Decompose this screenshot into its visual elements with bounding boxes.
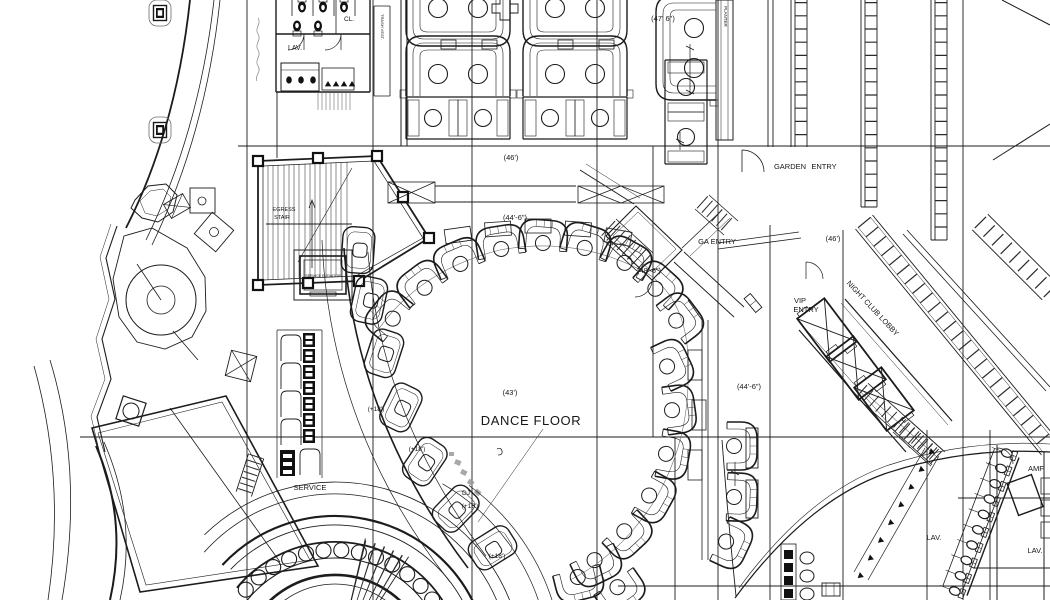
toilet-fixture <box>298 0 306 13</box>
cad-viewport[interactable]: LAV.CL.TRASH VEST.PLANTER(47' 6")GARDENE… <box>0 0 1050 600</box>
bottom-service-fixtures <box>781 544 840 600</box>
booth-seat <box>656 288 709 345</box>
dimension-tick <box>731 462 739 486</box>
niche <box>334 543 349 558</box>
label-lav-upper: LAV. <box>288 45 302 52</box>
rotunda-arc <box>443 484 547 600</box>
label-lav-lower-2: LAV. <box>1027 546 1042 555</box>
niche <box>400 567 415 582</box>
booth-seat <box>727 422 758 470</box>
label-garden-entry-word2: ENTRY <box>811 162 836 171</box>
label-tier-elev-b: (+18') <box>409 446 426 453</box>
dimension-tick <box>686 44 694 94</box>
niche <box>238 582 253 597</box>
niche <box>413 578 428 593</box>
lobby-curved-wall <box>735 451 1050 598</box>
toilet-fixture <box>977 508 995 522</box>
lower-lavatories <box>854 383 1050 600</box>
door-swing <box>325 34 341 50</box>
label-service: SERVICE <box>294 483 327 492</box>
upper-restrooms <box>256 0 390 158</box>
west-promenade <box>126 0 220 245</box>
door-swing <box>742 150 764 172</box>
rotunda-arc <box>257 575 408 600</box>
urinal-fixture <box>919 466 926 474</box>
escalator-band <box>791 0 807 147</box>
radial-stair <box>351 539 409 600</box>
column-grid <box>80 0 1050 600</box>
escalator-band <box>861 0 877 207</box>
dimension-tick <box>676 132 684 150</box>
escalator-band-diagonal <box>972 214 1050 300</box>
elevator-shaft <box>852 364 916 434</box>
booth-seat <box>392 255 449 308</box>
service-stair <box>236 454 264 497</box>
label-ga-entry: GA ENTRY <box>698 237 736 246</box>
label-service-elevator: SERVICE ELEVATOR <box>305 274 341 278</box>
toilet-stall-band <box>940 447 1018 599</box>
scalloped-ring <box>238 543 439 600</box>
label-dance-floor: DANCE FLOOR <box>481 413 582 428</box>
label-dim-46-upper: (46') <box>504 153 519 162</box>
centerline-symbol <box>497 448 502 455</box>
floor-plan-drawing: LAV.CL.TRASH VEST.PLANTER(47' 6")GARDENE… <box>0 0 1050 600</box>
niche <box>282 552 297 567</box>
vip-booth <box>399 434 451 490</box>
label-vip-entry-line2: ENTRY <box>793 305 818 314</box>
label-garden-entry-word1: GARDEN <box>774 162 806 171</box>
garden-entry-corridor <box>742 0 1050 240</box>
podium <box>744 294 762 313</box>
label-dim-48-6: (48'-6") <box>637 266 662 275</box>
label-egress-stair-line2: STAIR <box>274 215 290 221</box>
walkway-edge <box>993 0 1050 160</box>
shrub-line <box>256 18 259 81</box>
urinal-band <box>858 448 936 580</box>
hatch-stair <box>318 93 350 110</box>
label-dim-47-6: (47' 6") <box>651 14 675 23</box>
label-egress-stair-line1: EGRESS <box>273 207 296 213</box>
label-vip-entry-line1: VIP <box>794 296 806 305</box>
label-cl-closet: CL. <box>344 16 354 23</box>
escalator-band <box>931 0 947 240</box>
vip-booth <box>362 326 407 380</box>
booth-seat <box>400 0 516 46</box>
sofa-booths <box>406 97 510 139</box>
label-tier-elev-d: (+18') <box>489 553 506 560</box>
toilet-fixture <box>319 0 327 13</box>
label-dim-43: (43') <box>503 388 518 397</box>
label-dim-44-6-mid: (44'-6") <box>737 382 762 391</box>
toilet-fixture <box>340 0 348 13</box>
booth-seat <box>602 509 658 564</box>
label-tier-elev-c: (+18') <box>462 503 479 510</box>
night-club-lobby-area <box>722 214 1050 598</box>
x-planter <box>578 186 664 203</box>
column <box>149 0 171 26</box>
label-trash-vest: TRASH VEST. <box>380 14 385 40</box>
upper-lounge-area <box>400 0 773 164</box>
booth-seat <box>518 218 568 252</box>
label-lav-lower-1: LAV. <box>926 533 941 542</box>
niche <box>316 543 331 558</box>
bridge-corridor <box>435 186 576 202</box>
x-planter <box>388 182 435 203</box>
urinal-fixture <box>878 537 885 545</box>
rotunda <box>34 350 558 600</box>
booth-seat <box>517 0 633 46</box>
centerline <box>478 429 543 522</box>
toilet-fixture <box>983 493 1001 507</box>
label-dim-46-ga: (46') <box>826 234 841 243</box>
label-amf: AMF <box>1028 464 1044 473</box>
label-dj-booth: DJ <box>462 490 470 497</box>
door-swing <box>806 262 823 279</box>
urinal-fixture <box>858 572 865 580</box>
east-booth-cluster <box>709 422 758 573</box>
urinal-fixture <box>908 484 915 492</box>
niche <box>251 570 266 585</box>
urinal-fixture <box>888 519 895 527</box>
urinal-fixture <box>898 501 905 509</box>
urinal-fixture <box>868 554 875 562</box>
toilet-fixture <box>960 554 978 568</box>
toilet-fixture <box>971 524 989 538</box>
sofa-booths <box>665 60 707 164</box>
label-dim-44-6-upper: (44'-6") <box>503 213 528 222</box>
toilet-fixture <box>965 539 983 553</box>
sofa-booths <box>523 97 627 139</box>
booth-seat <box>661 383 698 435</box>
urinal-screen <box>322 68 354 90</box>
rotunda-arc <box>469 486 558 600</box>
booth-seat <box>650 335 698 391</box>
label-tier-elev-a: (+18') <box>368 406 385 413</box>
door-leaf <box>1007 475 1043 516</box>
service-bar <box>277 330 322 478</box>
label-planter: PLANTER <box>723 6 728 28</box>
stair-treads <box>266 158 352 284</box>
